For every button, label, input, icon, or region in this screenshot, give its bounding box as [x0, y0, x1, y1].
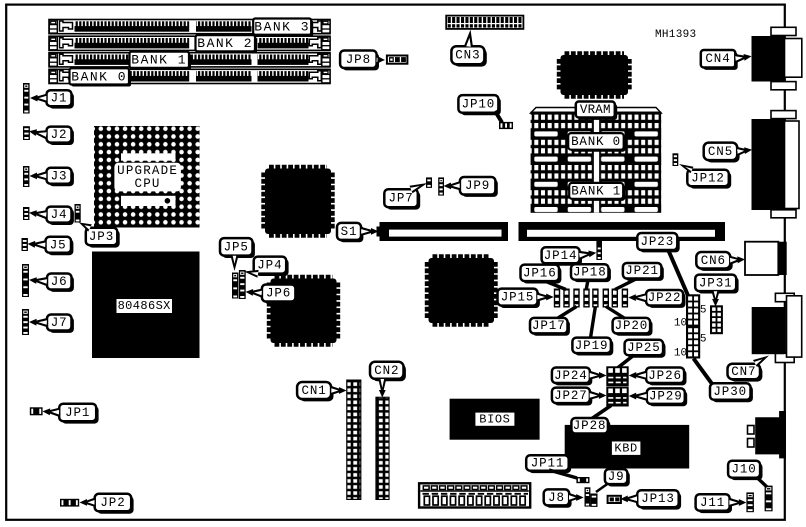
svg-text:JP10: JP10	[462, 97, 496, 111]
svg-text:JP1: JP1	[65, 406, 90, 420]
svg-text:JP16: JP16	[523, 266, 557, 280]
svg-text:JP3: JP3	[89, 230, 114, 244]
svg-text:CN7: CN7	[731, 365, 756, 379]
svg-text:JP20: JP20	[615, 319, 649, 333]
svg-text:JP29: JP29	[649, 390, 683, 404]
svg-text:JP7: JP7	[388, 192, 413, 206]
svg-text:JP23: JP23	[640, 235, 674, 249]
svg-text:5: 5	[700, 334, 707, 346]
svg-text:J2: J2	[51, 128, 68, 142]
svg-text:BIOS: BIOS	[479, 412, 510, 426]
svg-text:80486SX: 80486SX	[118, 299, 171, 313]
svg-text:JP30: JP30	[713, 385, 747, 399]
svg-text:J10: J10	[731, 463, 756, 477]
svg-text:CN1: CN1	[301, 384, 326, 398]
svg-text:J1: J1	[51, 92, 68, 106]
svg-text:JP17: JP17	[532, 319, 566, 333]
svg-text:JP22: JP22	[648, 291, 682, 305]
svg-text:J5: J5	[50, 238, 67, 252]
svg-text:JP28: JP28	[573, 419, 607, 433]
svg-text:CPU: CPU	[135, 177, 161, 191]
svg-text:CN6: CN6	[701, 254, 726, 268]
svg-text:CN3: CN3	[455, 49, 480, 63]
svg-text:CN2: CN2	[374, 364, 399, 378]
svg-text:CN5: CN5	[708, 145, 733, 159]
svg-text:JP5: JP5	[224, 240, 249, 254]
svg-text:JP6: JP6	[266, 287, 291, 301]
svg-text:J6: J6	[51, 275, 68, 289]
svg-text:JP12: JP12	[691, 171, 725, 185]
svg-text:JP31: JP31	[699, 276, 733, 290]
svg-text:BANK 3: BANK 3	[254, 20, 310, 35]
svg-text:J8: J8	[548, 491, 565, 505]
svg-text:JP18: JP18	[573, 265, 607, 279]
svg-text:JP19: JP19	[575, 339, 609, 353]
svg-text:JP2: JP2	[100, 496, 125, 510]
svg-text:JP15: JP15	[501, 291, 535, 305]
svg-text:MH1393: MH1393	[655, 29, 696, 41]
svg-text:5: 5	[700, 305, 707, 317]
svg-text:BANK 1: BANK 1	[131, 53, 187, 68]
svg-text:JP11: JP11	[531, 456, 565, 470]
svg-text:KBD: KBD	[614, 441, 637, 455]
svg-text:JP9: JP9	[465, 179, 490, 193]
svg-text:VRAM: VRAM	[580, 103, 611, 117]
svg-text:UPGRADE: UPGRADE	[117, 164, 178, 178]
svg-text:J4: J4	[51, 208, 68, 222]
svg-text:JP4: JP4	[257, 259, 282, 273]
svg-text:J9: J9	[608, 470, 625, 484]
svg-text:J7: J7	[51, 316, 68, 330]
svg-text:BANK 2: BANK 2	[197, 36, 253, 51]
svg-text:S1: S1	[341, 225, 358, 239]
svg-text:JP21: JP21	[625, 264, 659, 278]
svg-text:BANK 0: BANK 0	[71, 69, 127, 84]
svg-text:JP27: JP27	[554, 389, 588, 403]
svg-text:BANK 1: BANK 1	[571, 184, 621, 198]
svg-text:JP8: JP8	[346, 53, 371, 67]
svg-text:BANK 0: BANK 0	[571, 135, 621, 149]
svg-text:JP14: JP14	[544, 249, 578, 263]
svg-text:10: 10	[674, 318, 687, 330]
svg-text:JP25: JP25	[627, 341, 661, 355]
svg-text:CN4: CN4	[705, 52, 730, 66]
svg-text:J3: J3	[51, 169, 68, 183]
svg-text:JP26: JP26	[648, 369, 682, 383]
svg-text:JP24: JP24	[554, 369, 588, 383]
svg-text:10: 10	[674, 348, 687, 360]
svg-text:J11: J11	[700, 496, 725, 510]
svg-text:JP13: JP13	[641, 492, 675, 506]
